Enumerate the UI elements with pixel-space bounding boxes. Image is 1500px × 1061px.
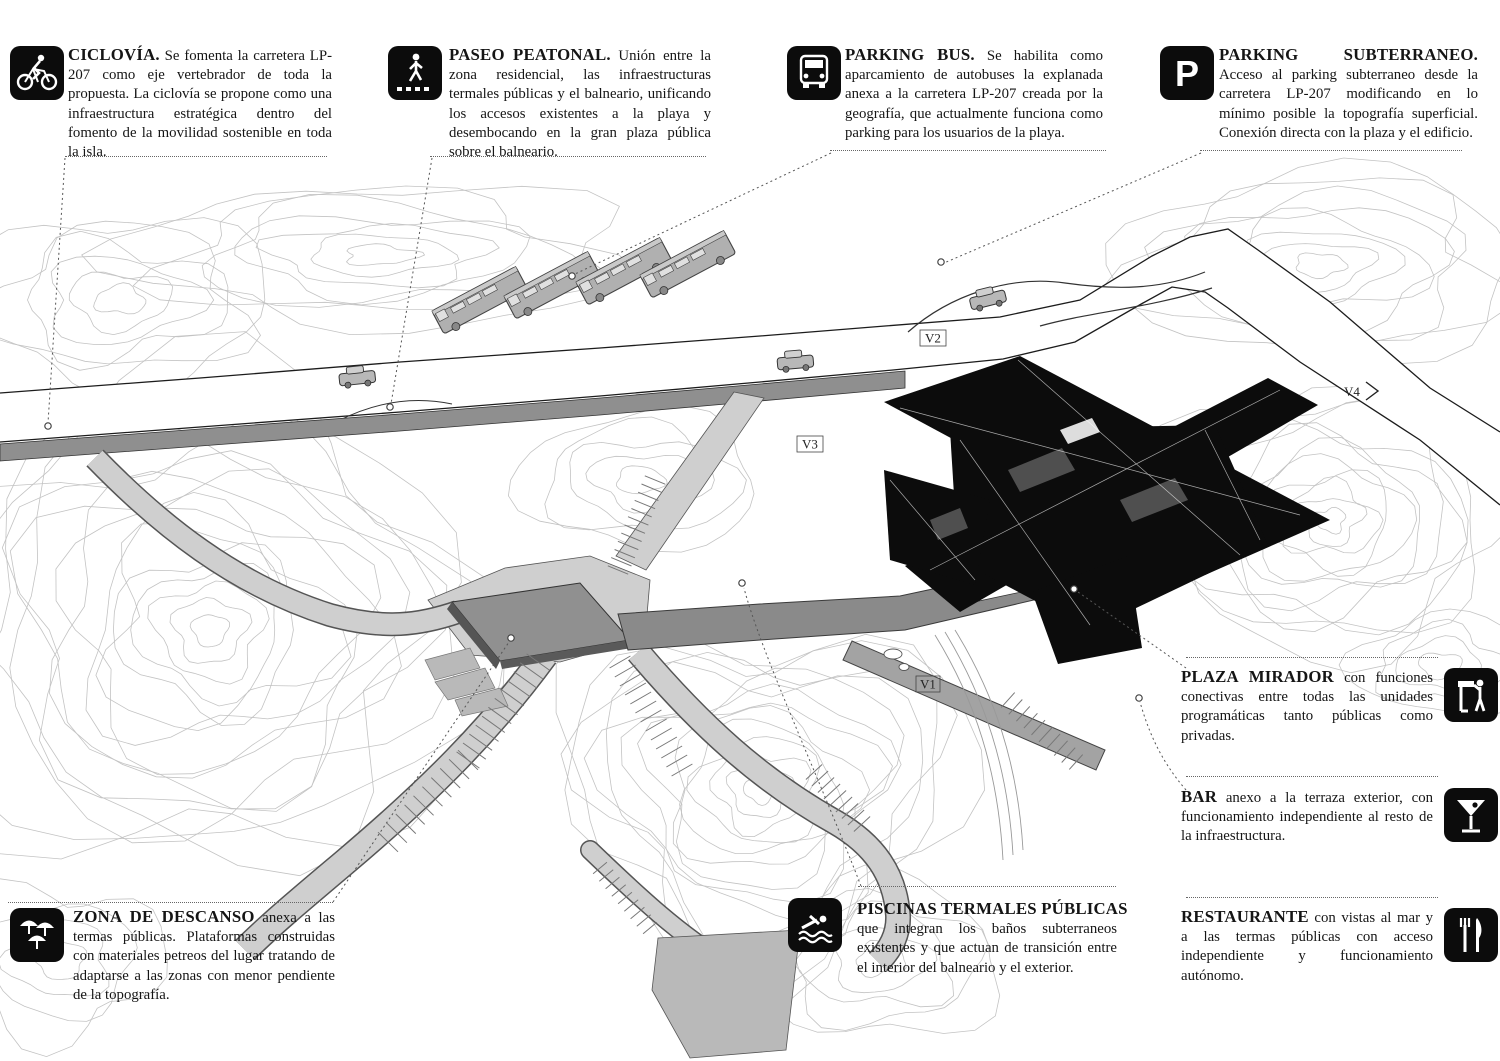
note-title: ZONA DE DESCANSO [73,907,255,926]
note-parking-subterraneo: PARKING SUBTERRANEO. Acceso al parking s… [1219,44,1478,143]
bus-icon [787,46,841,100]
note-title: PASEO PEATONAL. [449,45,611,64]
note-title: PLAZA MIRADOR [1181,667,1334,686]
note-title: CICLOVÍA. [68,45,160,64]
dotted-rule [1186,897,1438,898]
note-zona-descanso: ZONA DE DESCANSO anexa a las termas públ… [73,906,335,1005]
note-title: BAR [1181,787,1217,806]
note-body: Unión entre la zona residencial, las inf… [449,48,711,160]
note-title: PARKING BUS. [845,45,975,64]
pedestrian-icon [388,46,442,100]
note-parking-bus: PARKING BUS. Se habilita como aparcamien… [845,44,1103,143]
svg-text:P: P [1175,53,1199,94]
note-restaurante: RESTAURANTE con vistas al mar y a las te… [1181,906,1433,986]
label-v3: V3 [802,437,818,452]
label-v1: V1 [920,677,936,692]
note-piscinas-termales: PISCINAS TERMALES PÚBLICAS que integran … [857,898,1117,978]
parking-icon: P [1160,46,1214,100]
path-v3 [616,392,764,570]
dotted-rule [1186,776,1438,777]
note-body: que integran los baños subterraneos exis… [857,921,1117,975]
note-body: anexo a la terraza exterior, con funcion… [1181,790,1433,844]
note-plaza-mirador: PLAZA MIRADOR con funciones conectivas e… [1181,666,1433,746]
masterplan-sheet: V2 V3 V1 V4 [0,0,1500,1061]
swimmer-icon [788,898,842,952]
bicycle-icon [10,46,64,100]
cocktail-icon [1444,788,1498,842]
dotted-rule [8,902,333,903]
road-lp207 [0,229,1500,505]
dotted-rule [830,150,1106,151]
dotted-rule [1200,150,1462,151]
note-title: RESTAURANTE [1181,907,1309,926]
restaurant-icon [1444,908,1498,962]
note-title: PARKING SUBTERRANEO. [1219,45,1478,64]
note-bar: BAR anexo a la terraza exterior, con fun… [1181,786,1433,847]
label-v2: V2 [925,331,941,346]
note-title: PISCINAS TERMALES PÚBLICAS [857,899,1128,918]
note-body: Se fomenta la carretera LP-207 como eje … [68,48,332,160]
dotted-rule [1186,657,1438,658]
note-paseo-peatonal: PASEO PEATONAL. Unión entre la zona resi… [449,44,711,162]
dotted-rule [858,886,1116,887]
label-v4: V4 [1344,384,1360,399]
car [968,284,1008,313]
viewpoint-icon [1444,668,1498,722]
lower-esplanade [652,930,800,1058]
note-body: Acceso al parking subterraneo desde la c… [1219,67,1478,141]
note-ciclovia: CICLOVÍA. Se fomenta la carretera LP-207… [68,44,332,162]
umbrellas-icon [10,908,64,962]
